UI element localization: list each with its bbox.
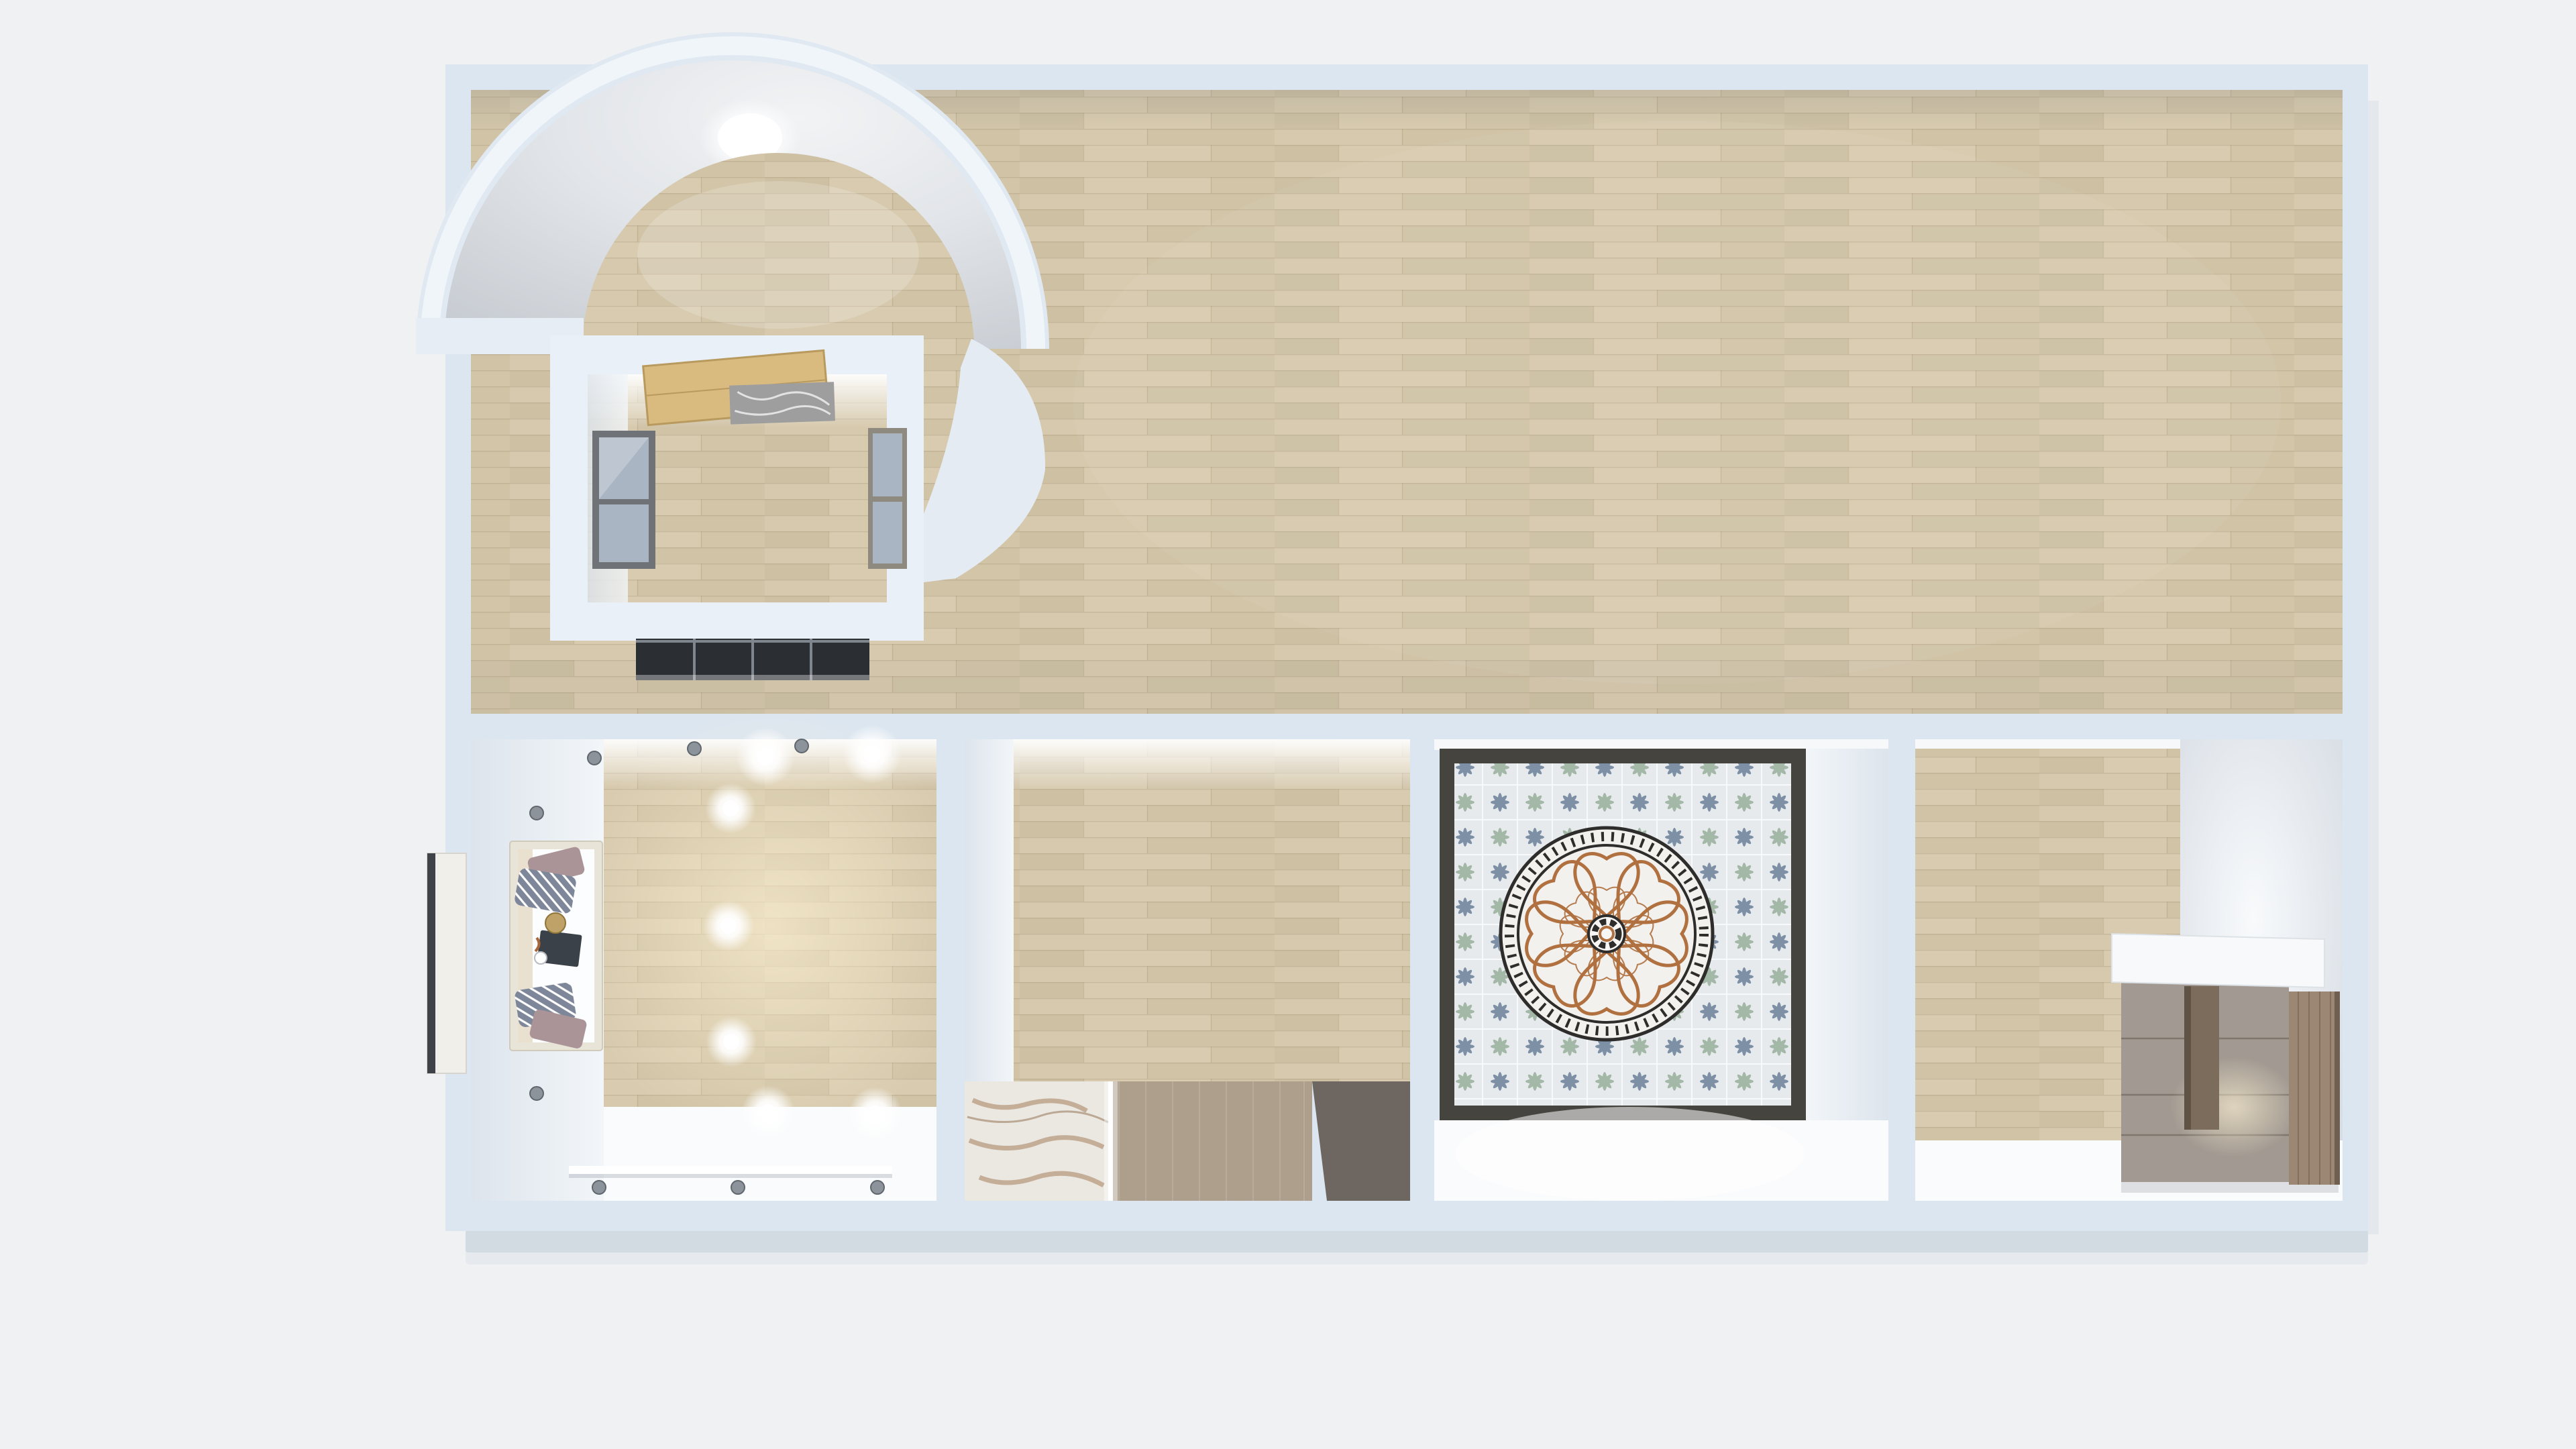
floorplan-stage: 3D home floor plan - top-down render [0, 0, 2576, 1449]
window-seat-nook[interactable] [510, 841, 602, 1051]
tiled-room-east-wall-face [1806, 749, 1888, 1120]
partition-wall-2 [1410, 739, 1434, 1201]
marble-threshold [729, 382, 835, 424]
ledge-shelf-shadow [569, 1174, 892, 1178]
carpet-runner [1111, 1081, 1312, 1201]
attic-right-window[interactable] [868, 428, 907, 569]
attic-box-room[interactable] [550, 335, 924, 680]
attic-left-window[interactable] [592, 431, 655, 569]
tiled-room-north-edge [1434, 739, 1888, 750]
partition-wall-3 [1888, 739, 1915, 1201]
dark-glass-sliders[interactable] [636, 639, 869, 680]
room-bedroom[interactable] [965, 739, 1410, 1201]
arch-floor-sheen [637, 181, 919, 329]
coffee-cup [535, 952, 547, 964]
slider-bottom-rail [636, 675, 869, 680]
exterior-tv-panel[interactable] [427, 853, 466, 1073]
room-lounge[interactable] [427, 704, 973, 1201]
floor-medallion[interactable] [1501, 828, 1713, 1040]
medallion-center-rosette [1589, 916, 1625, 952]
wardrobe-edge [2334, 991, 2340, 1185]
vanity-cabinet[interactable] [2112, 934, 2340, 1193]
wood-niche-shadow [2184, 986, 2191, 1130]
building-drop-shadow [466, 1230, 2368, 1265]
dark-floor-section [1312, 1081, 1410, 1201]
marble-floor-section [965, 1081, 1111, 1201]
partition-wall-1 [936, 739, 965, 1201]
gold-plate [545, 913, 566, 933]
white-countertop[interactable] [2112, 934, 2324, 987]
tall-wardrobe[interactable] [2289, 991, 2340, 1185]
right-outer-shadow [2368, 101, 2379, 1234]
led-strip[interactable] [1108, 1081, 1113, 1201]
ledge-shelf[interactable] [569, 1166, 892, 1174]
great-room-sheen [1073, 121, 2281, 684]
bedroom-west-wall-face [965, 739, 1014, 1081]
floorplan-render: 3D home floor plan - top-down render [0, 0, 2576, 1449]
tiled-room-floor-light [1456, 1107, 1805, 1201]
room-dressing[interactable] [1915, 739, 2343, 1201]
bedroom-north-wall-face [1014, 739, 1410, 792]
room-tiled[interactable] [1434, 739, 1888, 1201]
tv-panel-edge [427, 853, 435, 1073]
